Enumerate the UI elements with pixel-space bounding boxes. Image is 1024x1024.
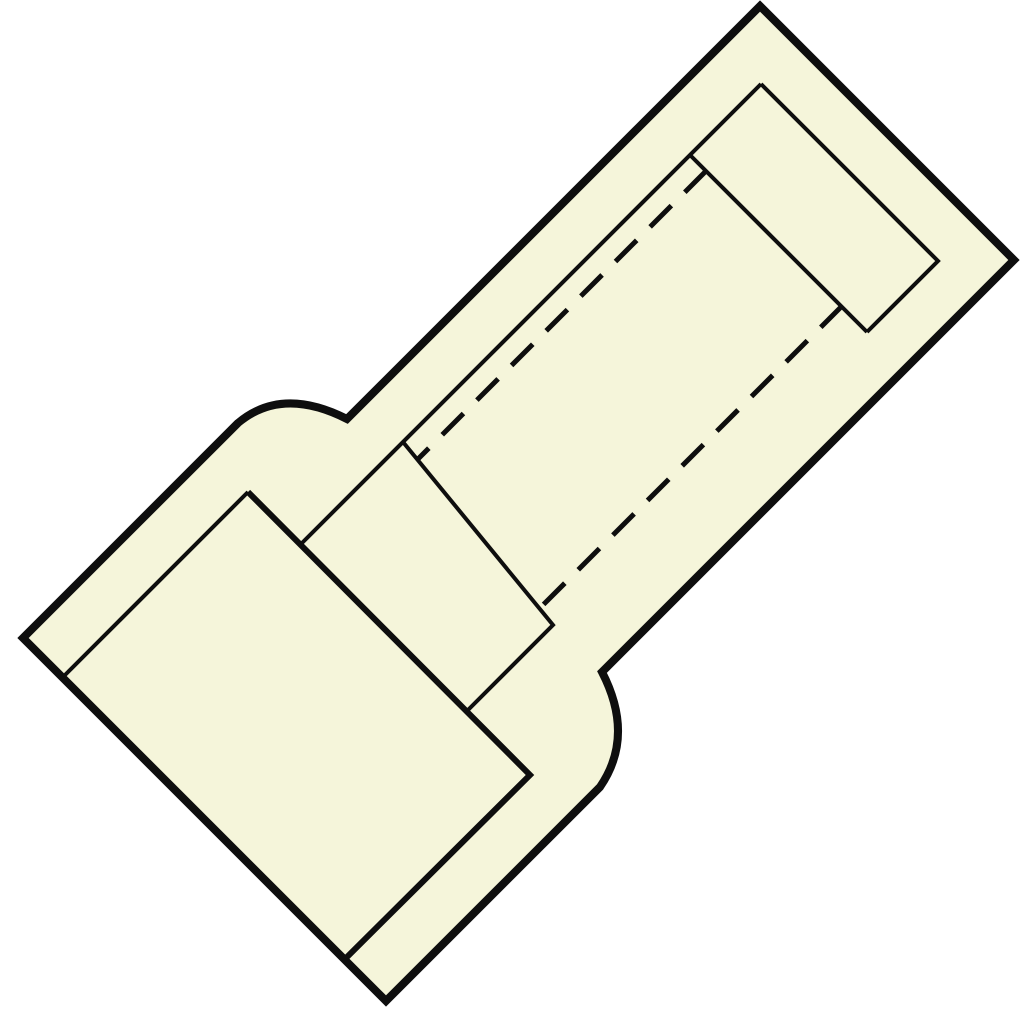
diagram-canvas (0, 0, 1024, 1024)
connector-body-silhouette (23, 6, 1014, 1001)
connector-line-drawing (0, 0, 1024, 1024)
